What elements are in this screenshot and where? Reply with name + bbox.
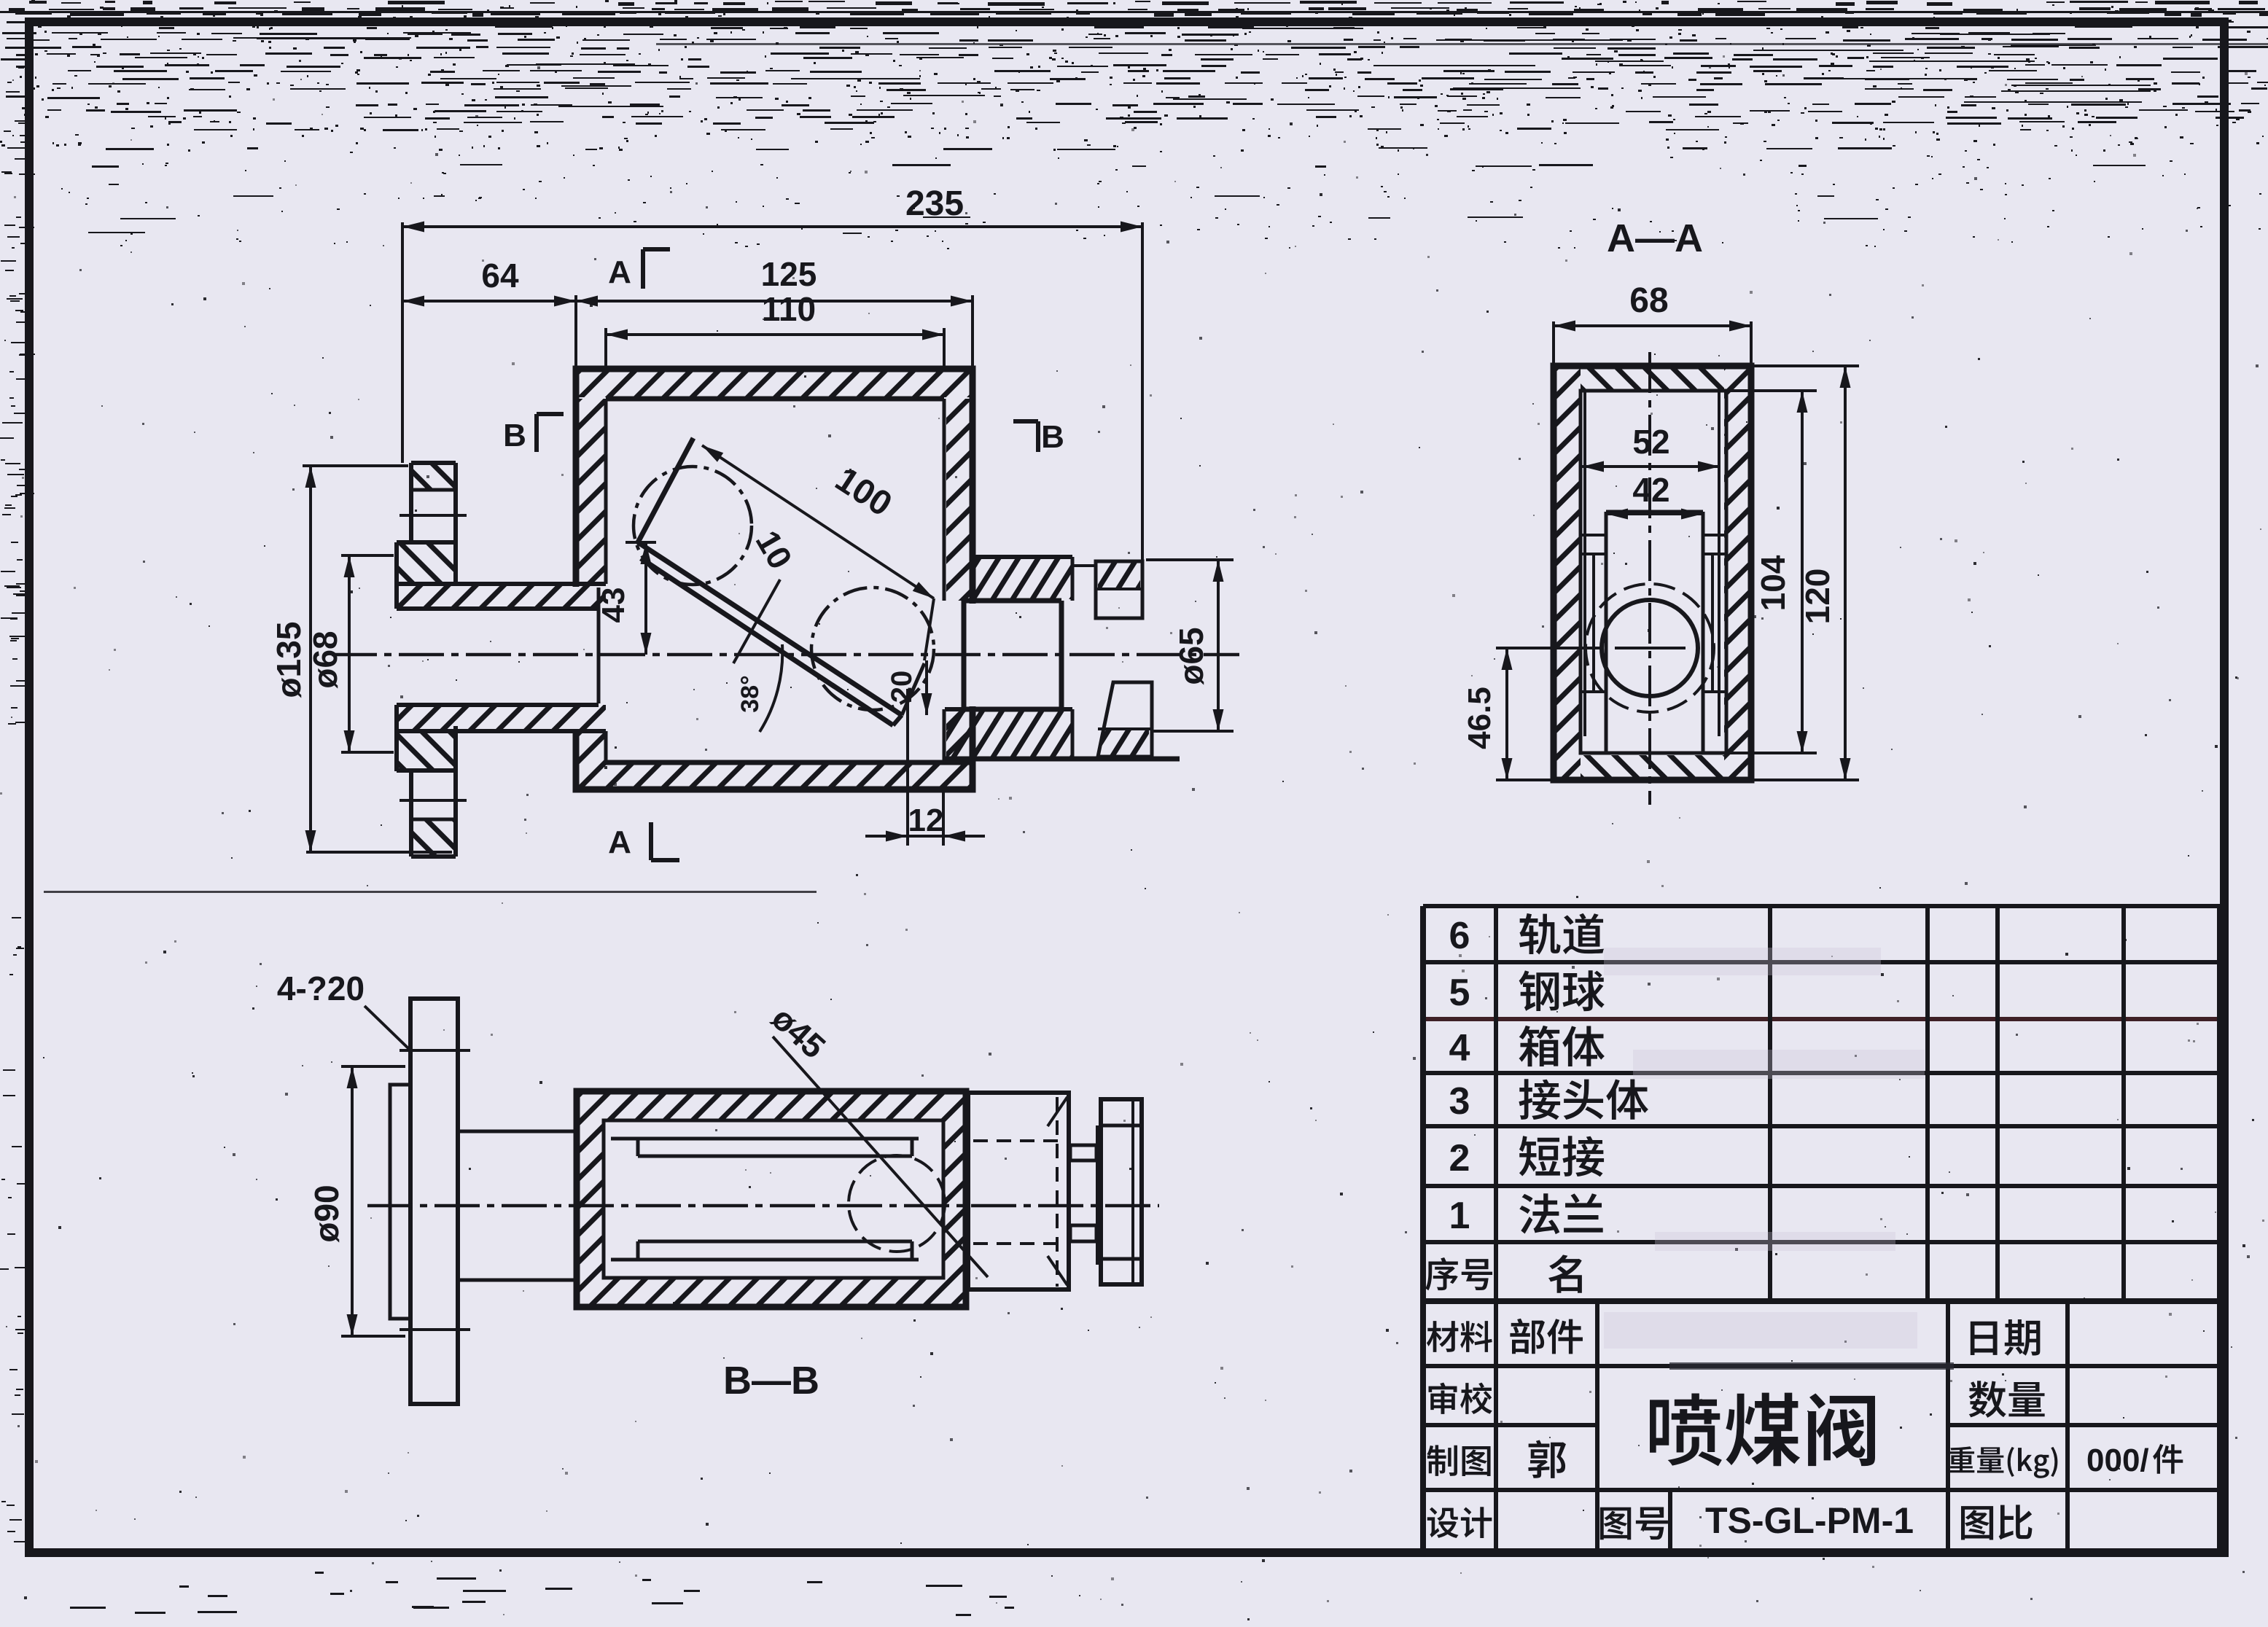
svg-text:ø135: ø135 [270, 622, 308, 698]
svg-text:A: A [608, 824, 631, 860]
svg-text:12: 12 [908, 803, 944, 838]
svg-text:120: 120 [1799, 569, 1836, 625]
svg-text:42: 42 [1632, 471, 1669, 509]
svg-text:1: 1 [1449, 1195, 1470, 1237]
svg-text:3: 3 [1449, 1080, 1470, 1123]
svg-text:20: 20 [886, 671, 918, 703]
svg-text:5: 5 [1449, 972, 1470, 1014]
svg-text:4-?20: 4-?20 [277, 969, 365, 1007]
svg-text:110: 110 [762, 290, 816, 328]
svg-text:235: 235 [905, 184, 964, 223]
svg-text:B: B [1041, 419, 1064, 455]
svg-text:ø65: ø65 [1172, 627, 1210, 684]
svg-text:2: 2 [1449, 1137, 1470, 1179]
svg-text:52: 52 [1632, 423, 1669, 461]
svg-text:A: A [608, 254, 631, 290]
svg-text:B: B [503, 418, 526, 453]
svg-text:46.5: 46.5 [1462, 687, 1497, 749]
svg-text:68: 68 [1629, 281, 1668, 320]
svg-text:ø68: ø68 [306, 631, 344, 688]
svg-text:104: 104 [1754, 555, 1792, 611]
svg-text:125: 125 [761, 255, 817, 293]
svg-text:6: 6 [1449, 915, 1470, 957]
svg-text:A—A: A—A [1607, 216, 1703, 260]
svg-text:B—B: B—B [723, 1359, 819, 1402]
svg-text:4: 4 [1449, 1027, 1470, 1069]
svg-text:43: 43 [596, 588, 631, 623]
svg-text:ø90: ø90 [308, 1185, 346, 1242]
svg-text:38°: 38° [736, 675, 764, 712]
svg-text:TS-GL-PM-1: TS-GL-PM-1 [1705, 1500, 1914, 1541]
svg-text:000/: 000/ [2086, 1443, 2149, 1478]
svg-text:64: 64 [481, 257, 519, 294]
